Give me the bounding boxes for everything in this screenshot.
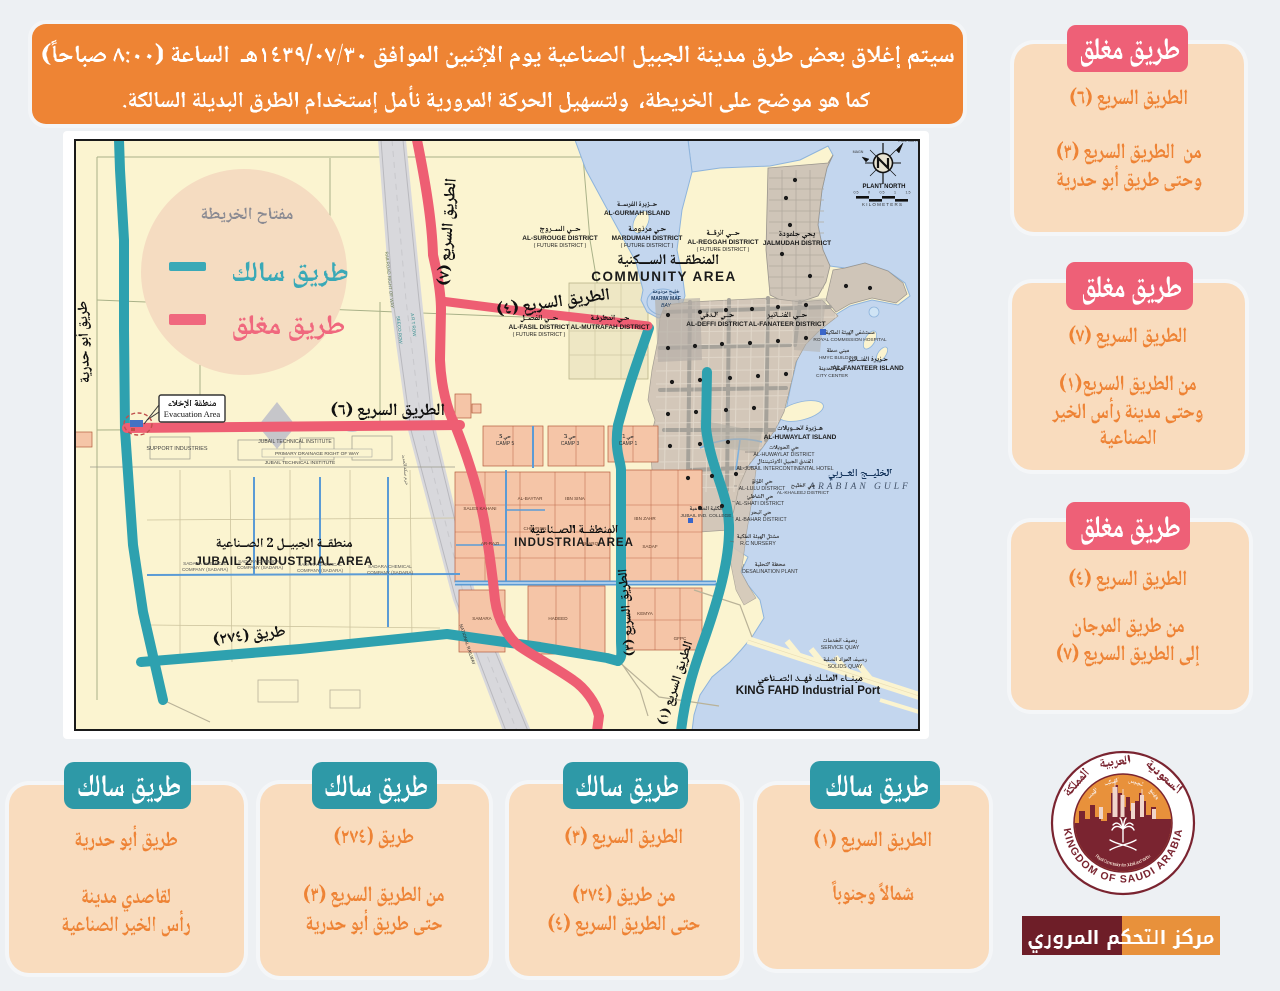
svg-text:BAY: BAY <box>661 303 671 309</box>
svg-text:COMPANY (SADARA): COMPANY (SADARA) <box>297 568 343 573</box>
svg-text:KING FAHD Industrial Port: KING FAHD Industrial Port <box>736 685 881 697</box>
svg-text:0.5: 0.5 <box>854 191 859 195</box>
svg-text:SADARA CHEMICAL: SADARA CHEMICAL <box>238 559 282 564</box>
svg-text:PRIMARY DRAINAGE RIGHT OF WAY: PRIMARY DRAINAGE RIGHT OF WAY <box>275 451 360 457</box>
svg-text:AL-FANATEER DISTRICT: AL-FANATEER DISTRICT <box>748 321 825 328</box>
svg-text:1: 1 <box>894 191 896 195</box>
svg-text:( FUTURE DISTRICT ): ( FUTURE DISTRICT ) <box>534 243 587 249</box>
svg-text:SADARA CHEMICAL: SADARA CHEMICAL <box>368 564 412 569</box>
svg-text:AL-BAYTAR: AL-BAYTAR <box>518 496 544 501</box>
svg-text:SADARA CHEMICAL: SADARA CHEMICAL <box>183 561 227 566</box>
svg-text:IBN SINA: IBN SINA <box>565 496 586 501</box>
svg-text:JUBAIL TECHNICAL INSTITUTE: JUBAIL TECHNICAL INSTITUTE <box>265 460 335 466</box>
svg-text:0: 0 <box>868 191 870 195</box>
svg-text:MAGN: MAGN <box>853 150 864 154</box>
svg-text:SERVICE QUAY: SERVICE QUAY <box>821 645 860 651</box>
svg-text:CAMP 1: CAMP 1 <box>619 441 638 447</box>
svg-text:AL-MUTRAFAH DISTRICT: AL-MUTRAFAH DISTRICT <box>570 324 649 331</box>
svg-text:HMYC BUILDING: HMYC BUILDING <box>819 355 857 361</box>
svg-text:CITY CENTER: CITY CENTER <box>816 373 848 379</box>
svg-text:CAMP 5: CAMP 5 <box>496 441 515 447</box>
svg-text:AL-REGGAH DISTRICT: AL-REGGAH DISTRICT <box>687 239 758 246</box>
svg-text:KEMYA: KEMYA <box>637 611 654 616</box>
svg-text:SADAF: SADAF <box>642 544 658 549</box>
svg-text:( FUTURE DISTRICT ): ( FUTURE DISTRICT ) <box>621 243 674 249</box>
svg-text:IBN ZAHR: IBN ZAHR <box>634 516 656 521</box>
svg-text:GFPC: GFPC <box>674 636 687 641</box>
svg-text:AL-SUROUGE DISTRICT: AL-SUROUGE DISTRICT <box>522 235 598 242</box>
svg-text:AL-FANATEER ISLAND: AL-FANATEER ISLAND <box>832 365 904 372</box>
svg-text:AL-HUWAYLAT ISLAND: AL-HUWAYLAT ISLAND <box>764 434 837 441</box>
svg-text:SALES KAHANI: SALES KAHANI <box>463 506 496 511</box>
svg-text:JALMUDAH DISTRICT: JALMUDAH DISTRICT <box>763 240 831 247</box>
svg-text:1.5: 1.5 <box>906 191 911 195</box>
svg-text:AL-HUWAYLAT DISTRICT: AL-HUWAYLAT DISTRICT <box>753 452 815 458</box>
svg-text:AL-KHALEEJ DISTRICT: AL-KHALEEJ DISTRICT <box>777 490 829 496</box>
svg-text:CHEVRON: CHEVRON <box>524 526 547 531</box>
svg-text:MARDUMAH DISTRICT: MARDUMAH DISTRICT <box>612 235 683 242</box>
svg-text:AL-DEFFI DISTRICT: AL-DEFFI DISTRICT <box>686 321 747 328</box>
svg-text:AL-GURMAH ISLAND: AL-GURMAH ISLAND <box>604 210 670 217</box>
svg-text:COMPANY (SADARA): COMPANY (SADARA) <box>182 567 228 572</box>
svg-text:MARIW MAF: MARIW MAF <box>651 296 681 302</box>
svg-text:Evacuation Area: Evacuation Area <box>164 409 221 419</box>
svg-text:AL-SHATI DISTRICT: AL-SHATI DISTRICT <box>736 501 785 507</box>
svg-text:SOLIDS QUAY: SOLIDS QUAY <box>828 664 863 670</box>
svg-text:AL-BAHAR DISTRICT: AL-BAHAR DISTRICT <box>735 517 787 523</box>
svg-text:INDUSTRIAL AREA: INDUSTRIAL AREA <box>514 537 634 549</box>
svg-text:COMPANY (SADARA): COMPANY (SADARA) <box>237 565 283 570</box>
svg-text:R.C NURSERY: R.C NURSERY <box>740 541 776 547</box>
svg-text:JUBAIL IND. COLLEGE: JUBAIL IND. COLLEGE <box>680 513 731 519</box>
svg-text:( FUTURE DISTRICT ): ( FUTURE DISTRICT ) <box>697 247 750 253</box>
svg-text:HADEED: HADEED <box>548 616 568 621</box>
svg-text:DESALINATION PLANT: DESALINATION PLANT <box>742 569 799 575</box>
svg-text:AL-FASIL DISTRICT: AL-FASIL DISTRICT <box>509 324 570 331</box>
svg-text:SHARQ: SHARQ <box>582 541 599 546</box>
svg-text:SADARA CHEMICAL: SADARA CHEMICAL <box>298 562 342 567</box>
svg-text:CAMP 3: CAMP 3 <box>561 441 580 447</box>
svg-text:0.5: 0.5 <box>880 191 885 195</box>
svg-text:JUBAIL TECHNICAL INSTITUTE: JUBAIL TECHNICAL INSTITUTE <box>258 439 332 445</box>
svg-text:K I L O M E T E R S: K I L O M E T E R S <box>862 202 902 207</box>
svg-text:ROYAL COMMISSION HOSPITAL: ROYAL COMMISSION HOSPITAL <box>813 337 887 343</box>
svg-text:AR-RAZI: AR-RAZI <box>481 541 499 546</box>
svg-text:COMPANY (SADARA): COMPANY (SADARA) <box>367 570 413 575</box>
svg-text:( FUTURE DISTRICT ): ( FUTURE DISTRICT ) <box>513 332 566 338</box>
svg-text:COMMUNITY AREA: COMMUNITY AREA <box>591 269 737 284</box>
svg-text:SUPPORT INDUSTRIES: SUPPORT INDUSTRIES <box>146 446 208 452</box>
svg-text:SAMARA: SAMARA <box>472 616 492 621</box>
svg-text:PLANT NORTH: PLANT NORTH <box>863 184 906 190</box>
